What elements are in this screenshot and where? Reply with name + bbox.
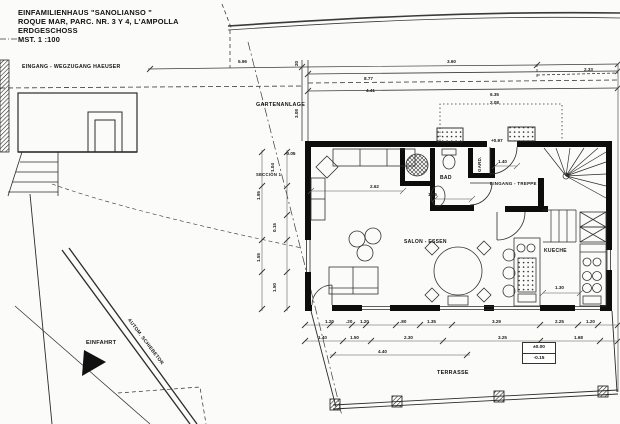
dimension-label: 1.50: [350, 335, 359, 340]
dimension-label: 1.20: [360, 319, 369, 324]
dimension-label: 1.04: [270, 163, 275, 172]
dimension-label: 0.15: [272, 223, 277, 232]
stool: [503, 249, 515, 261]
dimension-label: 1.30: [555, 285, 564, 290]
dimension-label: 1.20: [586, 319, 595, 324]
dimension-label: 2.25: [555, 319, 564, 324]
terrace-post: [598, 386, 608, 397]
chair: [477, 288, 491, 302]
burner: [583, 258, 591, 266]
level-terrace-upper: ±0.00: [523, 343, 555, 354]
burner: [583, 272, 592, 281]
wood-stove: [406, 154, 428, 176]
terrace-linework: [311, 311, 618, 410]
label-kitchen: KUECHE: [544, 248, 567, 254]
chair: [425, 288, 439, 302]
floor-plan-sheet: EINFAMILIENHAUS "SANOLIANSO " ROQUE MAR,…: [0, 0, 620, 424]
title-line-1: EINFAMILIENHAUS "SANOLIANSO ": [18, 8, 152, 17]
label-section: SECCIÓN 1: [256, 172, 281, 177]
dimension-label: 2.33: [584, 67, 593, 72]
label-entrance-path: EINGANG - WEGZUGANG HAEUSER: [22, 64, 121, 70]
terrace-level-box: ±0.00 -0.15: [522, 342, 556, 364]
neighbour-building: [0, 60, 302, 248]
coffee-table: [349, 231, 365, 247]
porch-pier: [508, 127, 535, 141]
dimension-label: 2.62: [370, 184, 379, 189]
porch-pier: [437, 128, 463, 142]
dimension-label: 6.35: [490, 92, 499, 97]
label-driveway: EINFAHRT: [86, 340, 116, 346]
title-line-2: ROQUE MAR, PARC. NR. 3 Y 4, L'AMPOLLA: [18, 17, 179, 26]
dimension-label: 1.65: [428, 192, 437, 197]
burner: [593, 258, 601, 266]
label-terrace: TERRASSE: [437, 370, 469, 376]
dimension-label: 1.35: [427, 319, 436, 324]
stool: [503, 285, 515, 297]
driveway-linework: [15, 194, 206, 424]
porch: [437, 104, 562, 142]
dimension-label: 1.95: [256, 191, 261, 200]
sofa: [329, 267, 378, 294]
toilet: [443, 155, 455, 169]
dimension-label: 2.08: [490, 100, 499, 105]
level-entrance: +0.97: [491, 138, 503, 143]
tall-cabinet: [580, 212, 606, 242]
level-corner: -0.05: [285, 151, 295, 156]
terrace-post: [392, 396, 402, 407]
label-wardrobe: GARD.: [477, 156, 482, 172]
burner: [583, 284, 592, 293]
burner: [593, 284, 602, 293]
label-living-dining: SALON - ESSEN: [404, 239, 447, 245]
dimension-label: 5.96: [238, 59, 247, 64]
label-garden: GARTENANLAGE: [256, 102, 305, 108]
side-table: [316, 156, 338, 178]
terrace-post: [330, 399, 340, 410]
winding-stair: [543, 148, 606, 242]
dimension-label: 1.55: [256, 253, 261, 262]
chair: [477, 241, 491, 255]
dimension-label: 8.77: [364, 76, 373, 81]
title-line-3: ERDGESCHOSS: [18, 26, 78, 35]
burner: [593, 272, 602, 281]
label-bath: BAD: [440, 175, 452, 181]
dimension-label: 1.20: [325, 319, 334, 324]
dimension-label: .20: [346, 319, 352, 324]
furniture: [311, 149, 606, 306]
title-line-4: MST. 1 :100: [18, 35, 60, 44]
terrace-post: [494, 391, 504, 402]
dimension-label: 3.29: [492, 319, 501, 324]
dimension-label: .80: [400, 319, 406, 324]
coffee-table: [365, 228, 381, 244]
dimension-label: 3.60: [447, 59, 456, 64]
house-walls: [305, 141, 612, 311]
dimension-label: 20: [294, 61, 299, 66]
dimension-label: 1.40: [498, 159, 507, 164]
chair: [448, 296, 468, 305]
dining-table: [434, 247, 482, 295]
dimension-label: 1.50: [272, 283, 277, 292]
dimension-label: 1.68: [574, 335, 583, 340]
dimension-label: 3.08: [294, 109, 299, 118]
dimension-label: 4.41: [366, 88, 375, 93]
dimension-label: 2.30: [404, 335, 413, 340]
gate-arrow-icon: [82, 350, 106, 376]
level-terrace-lower: -0.15: [523, 354, 555, 364]
sink: [583, 296, 601, 304]
dimension-label: 4.40: [378, 349, 387, 354]
coffee-table: [357, 245, 373, 261]
stool: [503, 267, 515, 279]
dimension-label: 1.40: [318, 335, 327, 340]
toilet: [442, 149, 456, 155]
label-entrance-stairs: EINGANG - TREPPE: [490, 181, 537, 186]
dimension-label: 3.25: [498, 335, 507, 340]
